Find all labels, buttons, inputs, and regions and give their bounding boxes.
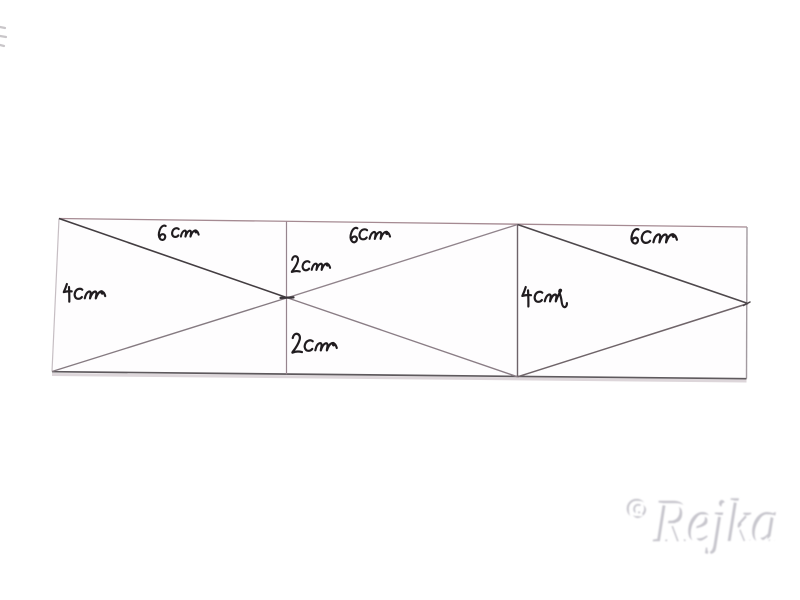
svg-text:Rejka: Rejka xyxy=(655,491,781,558)
